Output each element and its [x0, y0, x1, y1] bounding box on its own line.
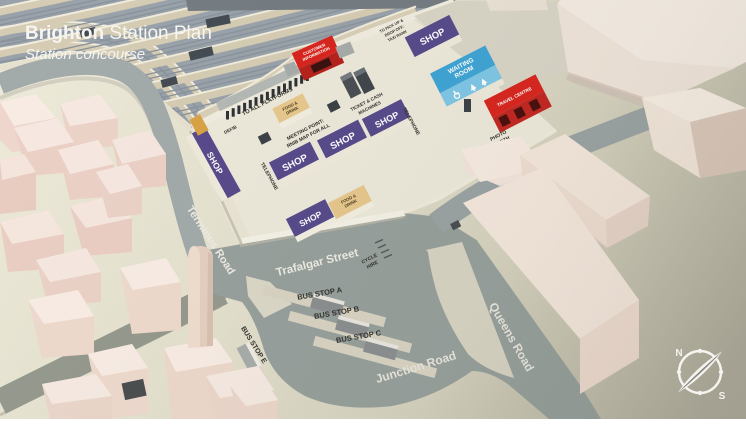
svg-text:Brighton Station Plan: Brighton Station Plan [25, 23, 212, 44]
svg-text:S: S [719, 391, 726, 402]
svg-text:N: N [675, 348, 682, 359]
svg-text:Station concourse: Station concourse [25, 46, 145, 63]
